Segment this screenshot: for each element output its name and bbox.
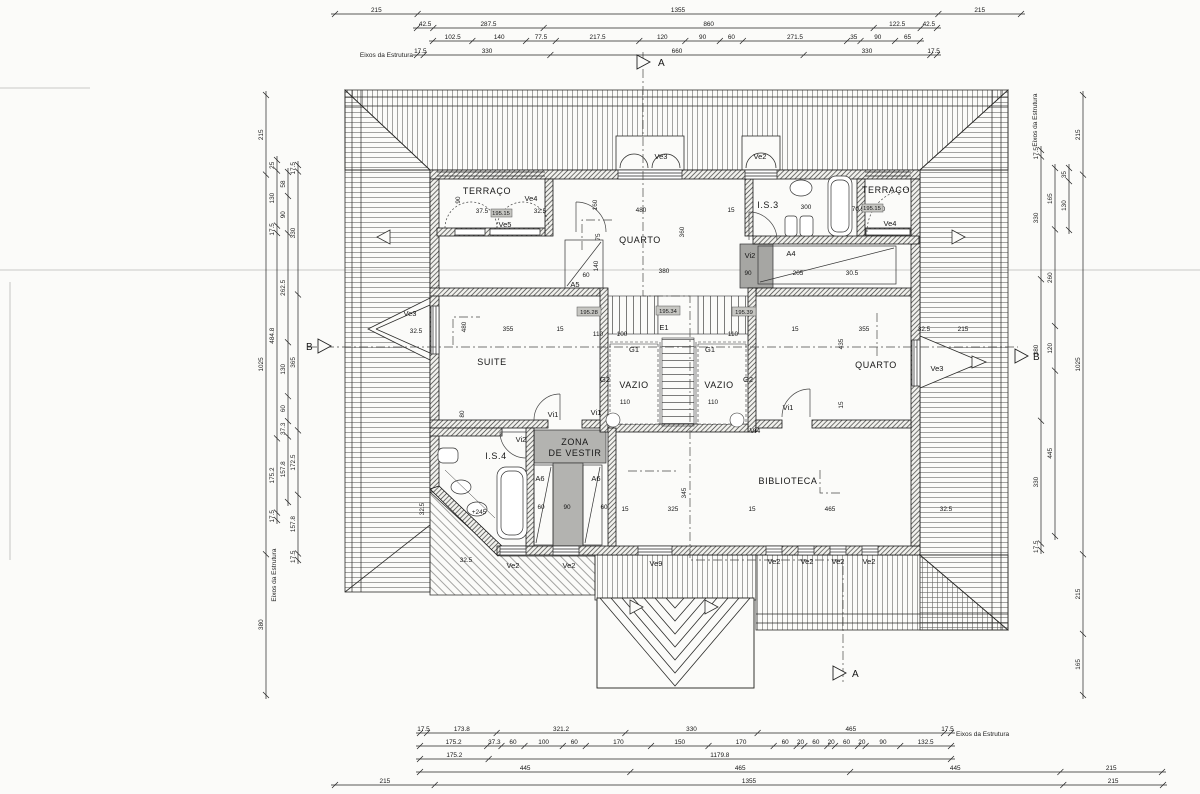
dim-value: 17.5 (269, 223, 276, 236)
dim-value: 445 (950, 765, 961, 772)
dim-value: 445 (1047, 448, 1054, 459)
elevation-terrace-left: 195.15 (492, 211, 510, 217)
dim-value: 215 (974, 7, 985, 14)
elevation-terrace-right: 195.15 (863, 206, 881, 212)
room-label-is3: I.S.3 (757, 200, 779, 210)
tag-ve9: Ve9 (650, 559, 663, 568)
dim-value: 90 (874, 34, 882, 41)
inline-dim-value: 90 (563, 504, 571, 511)
inline-dim-value: 355 (859, 326, 870, 333)
dim-value: 330 (482, 48, 493, 55)
dim-value: 215 (1075, 129, 1082, 140)
dim-value: 321.2 (553, 726, 569, 733)
axis-label-top: Eixos da Estrutura (360, 52, 413, 59)
inline-dim-value: 15 (838, 401, 845, 409)
dim-value: 132.5 (918, 739, 934, 746)
dim-value: 380 (258, 619, 265, 630)
axis-label-bottom: Eixos da Estrutura (956, 731, 1009, 738)
dim-value: 140 (494, 34, 505, 41)
tag-ve2-b5: Ve2 (832, 557, 845, 566)
dim-value: 60 (509, 739, 517, 746)
inline-dim-value: 205 (793, 270, 804, 277)
tag-vi4: Vi4 (750, 426, 761, 435)
dim-value: 90 (879, 739, 887, 746)
tag-ve2-b6: Ve2 (863, 557, 876, 566)
dim-value: 17.5 (290, 162, 297, 175)
dim-value: 1179.8 (710, 752, 730, 759)
inline-dim-value: 325 (668, 506, 679, 513)
column-vi4 (730, 413, 744, 427)
inline-dim-value: 32.5 (534, 208, 547, 215)
dim-value: 330 (290, 227, 297, 238)
tag-ve2-top: Ve2 (754, 152, 767, 161)
room-label-vazio-right: VAZIO (704, 380, 733, 390)
dim-value: 330 (1033, 476, 1040, 487)
inline-dim-value: 75 (595, 233, 602, 241)
tag-ve4-right: Ve4 (884, 219, 897, 228)
section-marker-a-top: A (658, 58, 665, 69)
dim-value: 157.8 (290, 516, 297, 532)
dim-value: 260 (1047, 272, 1054, 283)
dim-value: 122.5 (889, 21, 905, 28)
tag-a6-left: A6 (535, 474, 544, 483)
inline-dim-value: 215 (958, 326, 969, 333)
tag-ve2-b3: Ve2 (768, 557, 781, 566)
dim-value: 17.5 (941, 726, 954, 733)
tag-g1-left: G1 (629, 345, 639, 354)
tag-vi2-shaft: Vi2 (745, 251, 756, 260)
tag-ve3-right: Ve3 (931, 364, 944, 373)
inline-dim-value: 90 (744, 270, 752, 277)
inline-dim-value: 37.5 (476, 208, 489, 215)
room-label-is4: I.S.4 (485, 451, 507, 461)
dim-value: 17.5 (1033, 540, 1040, 553)
inline-dim-value: 80 (459, 410, 466, 418)
dim-value: 17.5 (269, 510, 276, 523)
bidet-is3 (800, 216, 813, 236)
section-marker-a-top-icon (637, 55, 650, 69)
dim-value: 60 (728, 34, 736, 41)
dim-value: 130 (1061, 200, 1068, 211)
inline-dim-value: 110 (728, 331, 739, 338)
tag-vi1-stair: Vi1 (591, 408, 602, 417)
dim-value: 60 (571, 739, 579, 746)
dim-value: 120 (1047, 343, 1054, 354)
floorplan-canvas: 2151355215 42.5287.5860122.542.5 102.514… (0, 0, 1200, 794)
dim-value: 60 (782, 739, 790, 746)
dim-value: 170 (736, 739, 747, 746)
inline-dim-value: 435 (838, 338, 845, 349)
dim-value: 17.5 (290, 550, 297, 563)
tag-a5: A5 (570, 280, 579, 289)
section-marker-a-bottom: A (852, 669, 859, 680)
inline-dim-value: 60 (537, 504, 545, 511)
inline-dim-value: 32.5 (419, 502, 426, 515)
section-marker-b-left-icon (318, 339, 331, 353)
toilet-is3 (785, 216, 797, 236)
inline-dim-value: 360 (679, 226, 686, 237)
inline-dim-value: 15 (791, 326, 799, 333)
dim-value: 215 (1108, 778, 1119, 785)
dim-value: 77.5 (535, 34, 548, 41)
dim-value: 90 (699, 34, 707, 41)
dim-value: 17.5 (1033, 147, 1040, 160)
dim-value: 170 (613, 739, 624, 746)
dim-value: 1025 (258, 357, 265, 372)
dim-value: 20 (858, 739, 866, 746)
inline-dim-value: 110 (708, 399, 719, 406)
tag-g1-right: G1 (705, 345, 715, 354)
section-marker-b-left: B (306, 342, 313, 353)
tag-vi2-is4: Vi2 (516, 435, 527, 444)
inline-dim-value: 90 (455, 196, 462, 204)
dim-value: 445 (520, 765, 531, 772)
dim-value: 17.5 (927, 48, 940, 55)
dim-value: 215 (371, 7, 382, 14)
dim-value: 860 (703, 21, 714, 28)
dim-value: 120 (657, 34, 668, 41)
axis-label-right: Eixos da Estrutura (1032, 93, 1039, 146)
dim-value: 271.5 (787, 34, 803, 41)
dim-value: 130 (280, 363, 287, 374)
stair-flight-left (608, 296, 658, 334)
dim-value: 217.5 (590, 34, 606, 41)
inline-dim-value: 32.5 (940, 506, 953, 513)
tag-ve3-left: Ve3 (404, 309, 417, 318)
room-label-vazio-left: VAZIO (619, 380, 648, 390)
inline-dim-value: 480 (461, 321, 468, 332)
tag-g2-left: G2 (600, 375, 610, 384)
roof-wing-top (595, 555, 756, 600)
inline-dim-value: 15 (556, 326, 564, 333)
tag-ve2-b1: Ve2 (507, 561, 520, 570)
inline-dim-value: 15 (748, 506, 756, 513)
dim-value: 365 (290, 357, 297, 368)
inline-dim-value: 32.5 (918, 326, 931, 333)
elevation-stair-right: 195.39 (735, 310, 753, 316)
inline-dim-value: 60 (600, 504, 608, 511)
dim-value: 330 (862, 48, 873, 55)
inline-dim-value: 32.5 (460, 557, 473, 564)
dim-value: 215 (380, 778, 391, 785)
dim-value: 150 (674, 739, 685, 746)
inline-dim-value: 15 (621, 506, 629, 513)
inline-dim-value: 465 (825, 506, 836, 513)
dim-value: 262.5 (280, 279, 287, 295)
inline-dim-value: 60 (582, 272, 590, 279)
inline-dim-value: 355 (503, 326, 514, 333)
dim-value: 35 (850, 34, 858, 41)
dim-value: 215 (1075, 588, 1082, 599)
tag-ve5: Ve5 (499, 220, 512, 229)
stair-flight-center (662, 338, 694, 426)
dim-value: 175.2 (446, 739, 462, 746)
room-label-quarto-right: QUARTO (855, 360, 897, 370)
dim-value: 175.2 (446, 752, 462, 759)
dim-value: 287.5 (480, 21, 496, 28)
dim-value: 215 (258, 129, 265, 140)
dim-value: 157.8 (280, 461, 287, 477)
dim-value: 17.5 (417, 726, 430, 733)
dim-value: 465 (735, 765, 746, 772)
tag-vi1-suite: Vi1 (548, 410, 559, 419)
dim-value: 35 (1061, 171, 1068, 179)
dim-value: 1025 (1075, 357, 1082, 372)
dim-value: 90 (280, 211, 287, 219)
room-label-terraco-left: TERRAÇO (463, 186, 511, 196)
section-marker-b-right-icon (1015, 349, 1028, 363)
dim-value: 42.5 (419, 21, 432, 28)
tag-e1: E1 (659, 323, 668, 332)
tag-vi1-quarto: Vi1 (783, 403, 794, 412)
room-label-quarto-top: QUARTO (619, 235, 661, 245)
dim-value: 102.5 (445, 34, 461, 41)
dim-value: 65 (904, 34, 912, 41)
dim-value: 660 (672, 48, 683, 55)
dim-value: 20 (828, 739, 836, 746)
dim-value: 172.5 (290, 454, 297, 470)
dim-value: 484.8 (269, 327, 276, 343)
elevation-stair-left: 195.28 (580, 310, 598, 316)
tag-a6-right: A6 (591, 474, 600, 483)
dim-value: 42.5 (923, 21, 936, 28)
dim-value: 330 (1033, 212, 1040, 223)
axis-label-left: Eixos da Estrutura (271, 548, 278, 601)
dim-value: 165 (1075, 659, 1082, 670)
dim-value: 165 (1047, 193, 1054, 204)
dim-value: 100 (538, 739, 549, 746)
inline-dim-value: 380 (659, 268, 670, 275)
dim-value: 130 (269, 192, 276, 203)
dim-value: 37.3 (280, 422, 287, 435)
dim-value: 37.3 (488, 739, 501, 746)
dim-value: 1355 (742, 778, 757, 785)
fixture-elevation-note: +245 (472, 509, 487, 516)
room-label-biblioteca: BIBLIOTECA (758, 476, 817, 486)
dim-value: 58 (280, 180, 287, 188)
dim-value: 60 (812, 739, 820, 746)
inline-dim-value: 300 (801, 204, 812, 211)
tag-ve4-left: Ve4 (525, 194, 538, 203)
dim-value: 330 (686, 726, 697, 733)
inline-dim-value: 160 (592, 199, 599, 210)
sink-is3 (790, 180, 812, 196)
inline-dim-value: 32.5 (410, 328, 423, 335)
elevation-stair-mid: 195.34 (659, 309, 678, 315)
inline-dim-value: 100 (617, 331, 628, 338)
inline-dim-value: 110 (593, 331, 604, 338)
dim-value: 215 (1106, 765, 1117, 772)
dim-value: 60 (280, 405, 287, 413)
room-label-zona-vestir-2: DE VESTIR (549, 448, 602, 458)
floorplan-drawing: 2151355215 42.5287.5860122.542.5 102.514… (0, 0, 1200, 794)
dim-value: 173.8 (454, 726, 470, 733)
inline-dim-value: 15 (727, 207, 735, 214)
dim-value: 20 (797, 739, 805, 746)
tag-ve2-b4: Ve2 (801, 557, 814, 566)
staircase (606, 296, 748, 427)
tag-ve2-b2: Ve2 (563, 561, 576, 570)
bathtub-is4 (497, 467, 527, 539)
section-marker-b-right: B (1033, 352, 1040, 363)
dim-value: 1355 (671, 7, 686, 14)
dim-value: 25 (269, 161, 276, 169)
inline-dim-value: 345 (681, 487, 688, 498)
dim-value: 175.2 (269, 467, 276, 483)
tag-ve3-top: Ve3 (655, 152, 668, 161)
inline-dim-value: 110 (620, 399, 631, 406)
toilet-is4 (438, 448, 458, 463)
dim-value: 60 (843, 739, 851, 746)
closet-a4 (758, 246, 896, 284)
room-label-zona-vestir-1: ZONA (561, 437, 588, 447)
inline-dim-value: 480 (636, 207, 647, 214)
inline-dim-value: 140 (593, 260, 600, 271)
room-label-suite: SUITE (477, 357, 507, 367)
dim-value: 17.5 (414, 48, 427, 55)
dim-value: 465 (845, 726, 856, 733)
tag-g2-right: G2 (743, 375, 753, 384)
column-vi1 (606, 413, 620, 427)
inline-dim-value: 30.5 (846, 270, 859, 277)
room-label-terraco-right: TERRAÇO (862, 185, 910, 195)
roof-wing-gable (597, 598, 754, 688)
section-marker-a-bottom-icon (833, 666, 846, 680)
tag-a4: A4 (786, 249, 795, 258)
